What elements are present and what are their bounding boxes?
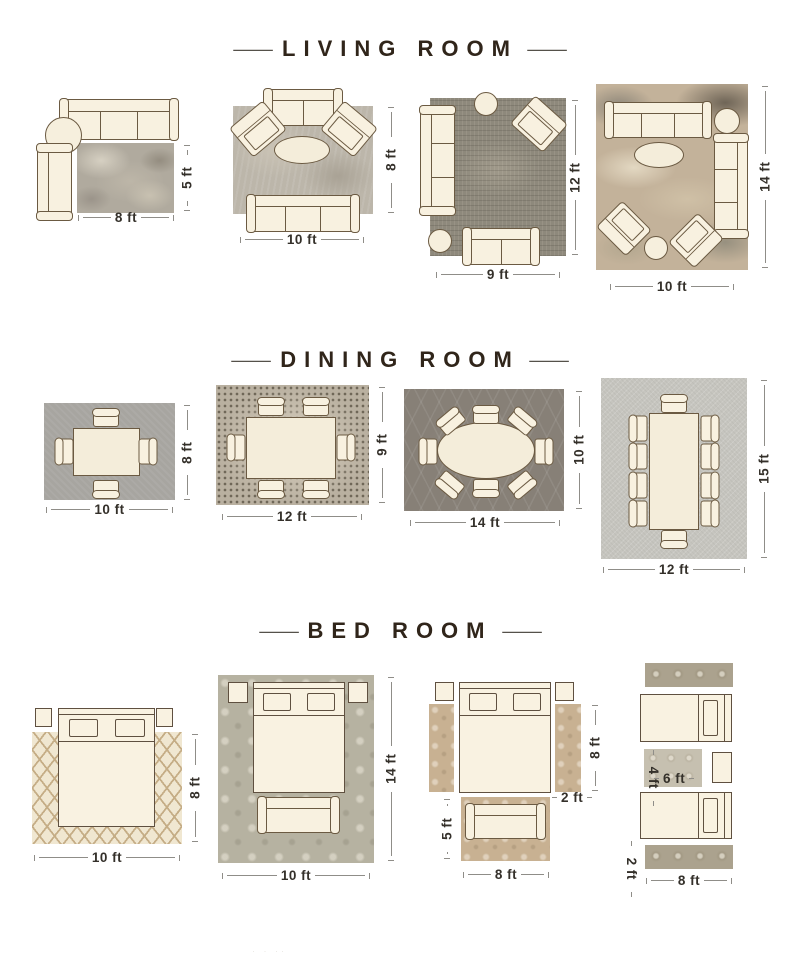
dim-line xyxy=(315,875,365,876)
pillow xyxy=(513,693,541,711)
sofa-arm xyxy=(350,194,360,233)
armchair-seat xyxy=(675,220,709,254)
sofa xyxy=(714,137,748,235)
width-dimension: 10 ft xyxy=(610,280,734,294)
loveseat-arm xyxy=(462,227,472,266)
dim-line xyxy=(447,804,448,806)
dim-line xyxy=(391,682,392,746)
dim-line xyxy=(39,857,88,858)
accent-rug-height-dimension: 4 ft xyxy=(646,750,660,787)
width-dimension: 8 ft xyxy=(463,868,549,882)
sofa-seats xyxy=(268,101,338,125)
loveseat-cushion xyxy=(470,816,541,838)
dim-line xyxy=(441,274,483,275)
dining-chair xyxy=(437,408,467,436)
sofa-cushion xyxy=(285,207,320,231)
bench-arm xyxy=(257,796,267,834)
width-dimension: 10 ft xyxy=(34,851,180,865)
dimension-label: 5 ft xyxy=(180,167,194,189)
nightstand xyxy=(435,682,454,701)
dim-line xyxy=(415,522,466,523)
dimension-label: 14 ft xyxy=(758,162,772,192)
sofa-arm xyxy=(702,101,712,139)
loveseat-cushion xyxy=(467,240,501,264)
width-dimension: 8 ft xyxy=(646,874,732,888)
sofa-cushion xyxy=(715,169,737,201)
dimension-label: 10 ft xyxy=(572,435,586,465)
dimension-label: 12 ft xyxy=(568,162,582,192)
sofa-cushion xyxy=(715,138,737,169)
dimension-label: 10 ft xyxy=(92,851,122,865)
dim-line xyxy=(608,569,655,570)
sofa-arm xyxy=(246,194,256,233)
oval-coffee-table xyxy=(274,136,330,164)
sofa-arm xyxy=(333,88,343,127)
sofa-cushion xyxy=(641,114,674,137)
runner-rug xyxy=(645,663,733,687)
dim-line xyxy=(391,183,392,208)
sofa-cushion xyxy=(64,112,100,139)
width-dimension: 12 ft xyxy=(603,563,745,577)
armchair xyxy=(320,100,378,157)
bed-headboard xyxy=(254,683,344,689)
dining-chair xyxy=(436,469,466,497)
armchair-back xyxy=(527,97,566,134)
dim-line xyxy=(468,874,491,875)
sofa-arm xyxy=(59,98,69,141)
dining-table xyxy=(73,428,140,476)
chaise-back xyxy=(38,148,49,216)
dimension-label: 5 ft xyxy=(440,818,454,840)
dining-chair xyxy=(701,444,716,470)
dim-line xyxy=(587,797,592,798)
dining-chair xyxy=(701,416,716,442)
dining-chair xyxy=(473,479,499,494)
area-rug xyxy=(32,732,182,844)
title-dash: — xyxy=(233,39,273,60)
twin-bed xyxy=(640,694,732,742)
bed-pillow-area xyxy=(460,689,550,716)
pillow xyxy=(115,719,144,737)
bed xyxy=(459,682,551,793)
sofa xyxy=(267,89,339,126)
living-layout-9x12: 9 ft 12 ft xyxy=(0,0,800,978)
height-dimension: 10 ft xyxy=(572,391,586,509)
dining-chair xyxy=(423,439,438,465)
dimension-label: 8 ft xyxy=(495,868,517,882)
dim-line xyxy=(129,509,168,510)
dim-line xyxy=(765,91,766,154)
dim-line xyxy=(195,811,196,837)
dining-chair xyxy=(258,480,284,495)
section-title-text: BED ROOM xyxy=(308,618,493,644)
height-dimension: 8 ft xyxy=(188,734,202,842)
bed-headboard xyxy=(460,683,550,689)
nightstand xyxy=(712,752,732,783)
armchair xyxy=(510,95,568,153)
dining-table xyxy=(649,413,699,530)
runner-rug xyxy=(555,704,581,792)
sofa-seats xyxy=(715,138,737,234)
dim-line xyxy=(653,750,654,755)
dining-chair xyxy=(661,398,687,413)
dining-layout-14x10: 14 ft 10 ft xyxy=(0,0,800,978)
dimension-label: 10 ft xyxy=(281,869,311,883)
dimension-label: 8 ft xyxy=(115,211,137,225)
dimension-label: 10 ft xyxy=(287,233,317,247)
dimension-label: 8 ft xyxy=(678,874,700,888)
chaise-arm xyxy=(36,211,73,221)
armchair xyxy=(229,100,287,157)
dining-chair xyxy=(139,439,154,465)
loveseat-cushion xyxy=(501,240,536,264)
sofa-cushion xyxy=(715,202,737,234)
sofa-seats xyxy=(432,110,454,211)
section-title-living: — LIVING ROOM — xyxy=(0,36,800,62)
bedroom-bench xyxy=(261,797,336,833)
section-title-text: LIVING ROOM xyxy=(282,36,518,62)
bedroom-layout-10x8: 10 ft 8 ft xyxy=(0,0,800,978)
dim-line xyxy=(704,880,727,881)
area-rug xyxy=(404,389,564,511)
sofa-seats xyxy=(251,207,355,231)
runner-width-dimension: 2 ft xyxy=(624,841,638,873)
dining-chair xyxy=(93,480,119,495)
sofa-back xyxy=(737,138,747,234)
sofa-arm xyxy=(419,206,456,216)
dim-line xyxy=(195,739,196,765)
dim-line xyxy=(187,410,188,430)
accent-rug xyxy=(644,749,702,787)
width-dimension: 10 ft xyxy=(46,503,173,517)
dimension-label: 14 ft xyxy=(384,754,398,784)
area-rug xyxy=(218,675,374,863)
sofa-back xyxy=(64,100,174,112)
sofa-seats xyxy=(64,112,174,139)
dim-line xyxy=(187,201,188,206)
bedroom-layout-10x14: 10 ft 14 ft xyxy=(0,0,800,978)
oval-dining-table xyxy=(437,422,535,479)
dim-line xyxy=(321,239,359,240)
loveseat-seat xyxy=(470,816,541,838)
section-title-text: DINING ROOM xyxy=(280,347,520,373)
nightstand xyxy=(348,682,368,703)
dim-line xyxy=(391,112,392,137)
height-dimension: 12 ft xyxy=(568,100,582,255)
nightstand xyxy=(555,682,574,701)
sofa-cushion xyxy=(432,177,454,211)
accent-rug-width-dimension: 6 ft xyxy=(654,772,700,786)
bedroom-layout-twin-beds: 4 ft 6 ft 2 ft 8 ft xyxy=(0,0,800,978)
chaise xyxy=(37,147,72,217)
dining-layout-12x15: 12 ft 15 ft xyxy=(0,0,800,978)
dining-chair xyxy=(701,501,716,527)
dim-line xyxy=(689,778,694,779)
width-dimension: 14 ft xyxy=(410,516,560,530)
dim-line xyxy=(654,778,659,779)
dining-chair xyxy=(633,416,648,442)
sofa-cushion xyxy=(674,114,707,137)
chaise-cushion xyxy=(49,148,71,216)
bed-blanket xyxy=(254,716,344,792)
accent-rug xyxy=(461,797,550,861)
dimension-label: 12 ft xyxy=(277,510,307,524)
oval-coffee-table xyxy=(634,142,684,168)
living-layout-8x5: 8 ft 5 ft xyxy=(0,0,800,978)
dining-chair xyxy=(303,480,329,495)
living-layout-10x14: 10 ft 14 ft xyxy=(0,0,800,978)
bed xyxy=(253,682,345,793)
height-dimension: 14 ft xyxy=(758,86,772,268)
width-dimension: 10 ft xyxy=(222,869,370,883)
dim-line xyxy=(764,492,765,553)
sofa xyxy=(608,102,708,138)
runner-rug xyxy=(645,845,733,869)
bed-pillow-area xyxy=(699,695,725,741)
title-dash: — xyxy=(259,621,299,642)
dining-chair xyxy=(701,473,716,499)
section-title-dining: — DINING ROOM — xyxy=(0,347,800,373)
round-side-table xyxy=(474,92,498,116)
dim-line xyxy=(382,468,383,498)
nightstand xyxy=(228,682,248,703)
dim-line xyxy=(391,792,392,856)
section-title-bedroom: — BED ROOM — xyxy=(0,618,800,644)
dim-line xyxy=(764,385,765,446)
bed-headboard xyxy=(59,709,154,715)
sofa-cushion xyxy=(268,101,303,125)
dim-line xyxy=(615,286,653,287)
dim-line xyxy=(579,473,580,504)
armchair-back xyxy=(597,218,634,255)
sofa-arm xyxy=(604,101,614,139)
dim-line xyxy=(382,392,383,422)
dim-line xyxy=(693,569,740,570)
bed-headboard xyxy=(725,695,731,741)
armchair xyxy=(668,213,724,269)
armchair-back xyxy=(230,102,270,138)
dimension-label: 8 ft xyxy=(588,737,602,759)
sofa-arm xyxy=(713,229,749,239)
sofa-cushion xyxy=(320,207,355,231)
sofa-cushion xyxy=(432,110,454,143)
bench-arm xyxy=(330,796,340,834)
dim-line xyxy=(653,801,654,806)
dining-chair xyxy=(258,401,284,416)
bed-blanket xyxy=(641,793,699,838)
dining-chair xyxy=(506,469,536,497)
armchair-seat xyxy=(327,116,364,151)
sofa-cushion xyxy=(137,112,174,139)
title-dash: — xyxy=(231,350,271,371)
area-rug xyxy=(233,106,373,214)
dim-line xyxy=(126,857,175,858)
bedroom-layout-runners: 8 ft 2 ft 5 ft 8 ft xyxy=(0,0,800,978)
sofa-arm xyxy=(713,133,749,143)
height-dimension: 8 ft xyxy=(180,405,194,500)
dim-line xyxy=(595,771,596,786)
pillow xyxy=(703,700,718,736)
loveseat-arm xyxy=(530,227,540,266)
dim-line xyxy=(504,522,555,523)
dining-layout-10x8: 10 ft 8 ft xyxy=(0,0,800,978)
runner-length-dimension: 8 ft xyxy=(588,705,602,791)
area-rug xyxy=(601,378,747,559)
round-side-table xyxy=(714,108,740,134)
dim-line xyxy=(227,875,277,876)
area-rug xyxy=(596,84,748,270)
chaise-arm xyxy=(36,143,73,153)
sofa-arm xyxy=(263,88,273,127)
sofa-back xyxy=(609,103,707,114)
bed xyxy=(58,708,155,827)
dim-line xyxy=(227,516,273,517)
nightstand xyxy=(156,708,173,727)
chaise-seat xyxy=(49,148,71,216)
sofa-cushion xyxy=(609,114,641,137)
title-dash: — xyxy=(527,39,567,60)
dining-chair xyxy=(633,473,648,499)
dim-line xyxy=(575,105,576,155)
dimension-label: 9 ft xyxy=(487,268,509,282)
dining-chair xyxy=(93,412,119,427)
title-dash: — xyxy=(529,350,569,371)
dining-chair xyxy=(633,501,648,527)
dim-line xyxy=(311,516,357,517)
dining-chair xyxy=(231,435,246,461)
sofa-back xyxy=(421,110,432,211)
height-dimension: 9 ft xyxy=(375,387,389,503)
dimension-label: 6 ft xyxy=(663,772,685,786)
sofa xyxy=(420,109,455,212)
dim-line xyxy=(245,239,283,240)
armchair-back xyxy=(337,102,377,138)
width-dimension: 8 ft xyxy=(78,211,174,225)
dimension-label: 10 ft xyxy=(94,503,124,517)
dim-line xyxy=(513,274,555,275)
runner-rug xyxy=(429,704,454,792)
height-dimension: 8 ft xyxy=(384,107,398,213)
dim-line xyxy=(521,874,544,875)
loveseat xyxy=(466,228,536,265)
dimension-label: 8 ft xyxy=(180,441,194,463)
dimension-label: 14 ft xyxy=(470,516,500,530)
width-dimension: 10 ft xyxy=(240,233,364,247)
bed-headboard xyxy=(725,793,731,838)
pillow xyxy=(307,693,335,711)
bench-seat xyxy=(262,809,335,832)
loveseat-back xyxy=(470,805,541,816)
bench-back xyxy=(262,798,335,809)
loveseat-arm xyxy=(465,803,475,840)
runner-width-dimension: 2 ft xyxy=(552,791,596,805)
dim-line xyxy=(575,200,576,250)
rug-size-guide: — LIVING ROOM — 8 ft xyxy=(0,0,800,978)
dim-line xyxy=(631,841,632,846)
sofa-back xyxy=(268,90,338,101)
armchair-seat xyxy=(611,208,645,242)
loveseat-seats xyxy=(467,240,535,264)
dim-line xyxy=(631,892,632,897)
loveseat-arm xyxy=(536,803,546,840)
dimension-label: 9 ft xyxy=(375,434,389,456)
title-dash: — xyxy=(502,621,542,642)
dimension-label: 2 ft xyxy=(624,858,638,880)
height-dimension: 14 ft xyxy=(384,677,398,861)
area-rug xyxy=(216,385,369,505)
dimension-label: 8 ft xyxy=(384,149,398,171)
dining-chair xyxy=(506,408,536,436)
dining-chair xyxy=(59,439,74,465)
dimension-label: 10 ft xyxy=(657,280,687,294)
dimension-label: 2 ft xyxy=(561,791,583,805)
dim-line xyxy=(552,797,557,798)
sofa-arm xyxy=(419,105,456,115)
dim-line xyxy=(187,150,188,155)
pillow xyxy=(703,798,718,833)
sofa xyxy=(63,99,175,140)
area-rug xyxy=(77,143,174,213)
sofa-cushion xyxy=(432,143,454,177)
twin-bed xyxy=(640,792,732,839)
round-side-table xyxy=(644,236,668,260)
dim-line xyxy=(765,200,766,263)
armchair-seat xyxy=(517,110,553,145)
accent-rug-height-dimension: 5 ft xyxy=(440,799,454,859)
dim-line xyxy=(141,217,169,218)
bedroom-loveseat xyxy=(469,804,542,839)
dining-chair xyxy=(473,409,499,424)
bench-cushion xyxy=(262,809,335,832)
dining-chair xyxy=(303,401,329,416)
dimension-label: 12 ft xyxy=(659,563,689,577)
sofa-seats xyxy=(609,114,707,137)
round-side-table xyxy=(428,229,452,253)
width-dimension: 12 ft xyxy=(222,510,362,524)
sofa xyxy=(250,195,356,232)
dim-line xyxy=(595,710,596,725)
dining-layout-12x9: 12 ft 9 ft xyxy=(0,0,800,978)
bed-pillow-area xyxy=(699,793,725,838)
watermark: · · ·· xyxy=(252,946,287,956)
dim-line xyxy=(691,286,729,287)
dining-chair xyxy=(337,435,352,461)
round-side-table xyxy=(45,117,82,154)
dim-line xyxy=(51,509,90,510)
dimension-label: 4 ft xyxy=(646,767,660,789)
dim-line xyxy=(447,852,448,854)
dining-table xyxy=(246,417,336,479)
armchair-back xyxy=(686,230,723,267)
dining-chair xyxy=(535,439,550,465)
area-rug xyxy=(430,98,566,256)
dim-line xyxy=(187,475,188,495)
armchair-seat xyxy=(243,116,280,151)
sofa-cushion xyxy=(251,207,285,231)
dimension-label: 15 ft xyxy=(757,454,771,484)
armchair xyxy=(596,201,652,257)
sofa-back xyxy=(251,196,355,207)
dining-chair xyxy=(633,444,648,470)
pillow xyxy=(69,719,98,737)
loveseat-back xyxy=(467,229,535,240)
dining-chair xyxy=(661,530,687,545)
dimension-label: 8 ft xyxy=(188,777,202,799)
bed-pillow-area xyxy=(59,715,154,742)
bed-pillow-area xyxy=(254,689,344,716)
dim-line xyxy=(651,880,674,881)
bed-blanket xyxy=(59,742,154,826)
